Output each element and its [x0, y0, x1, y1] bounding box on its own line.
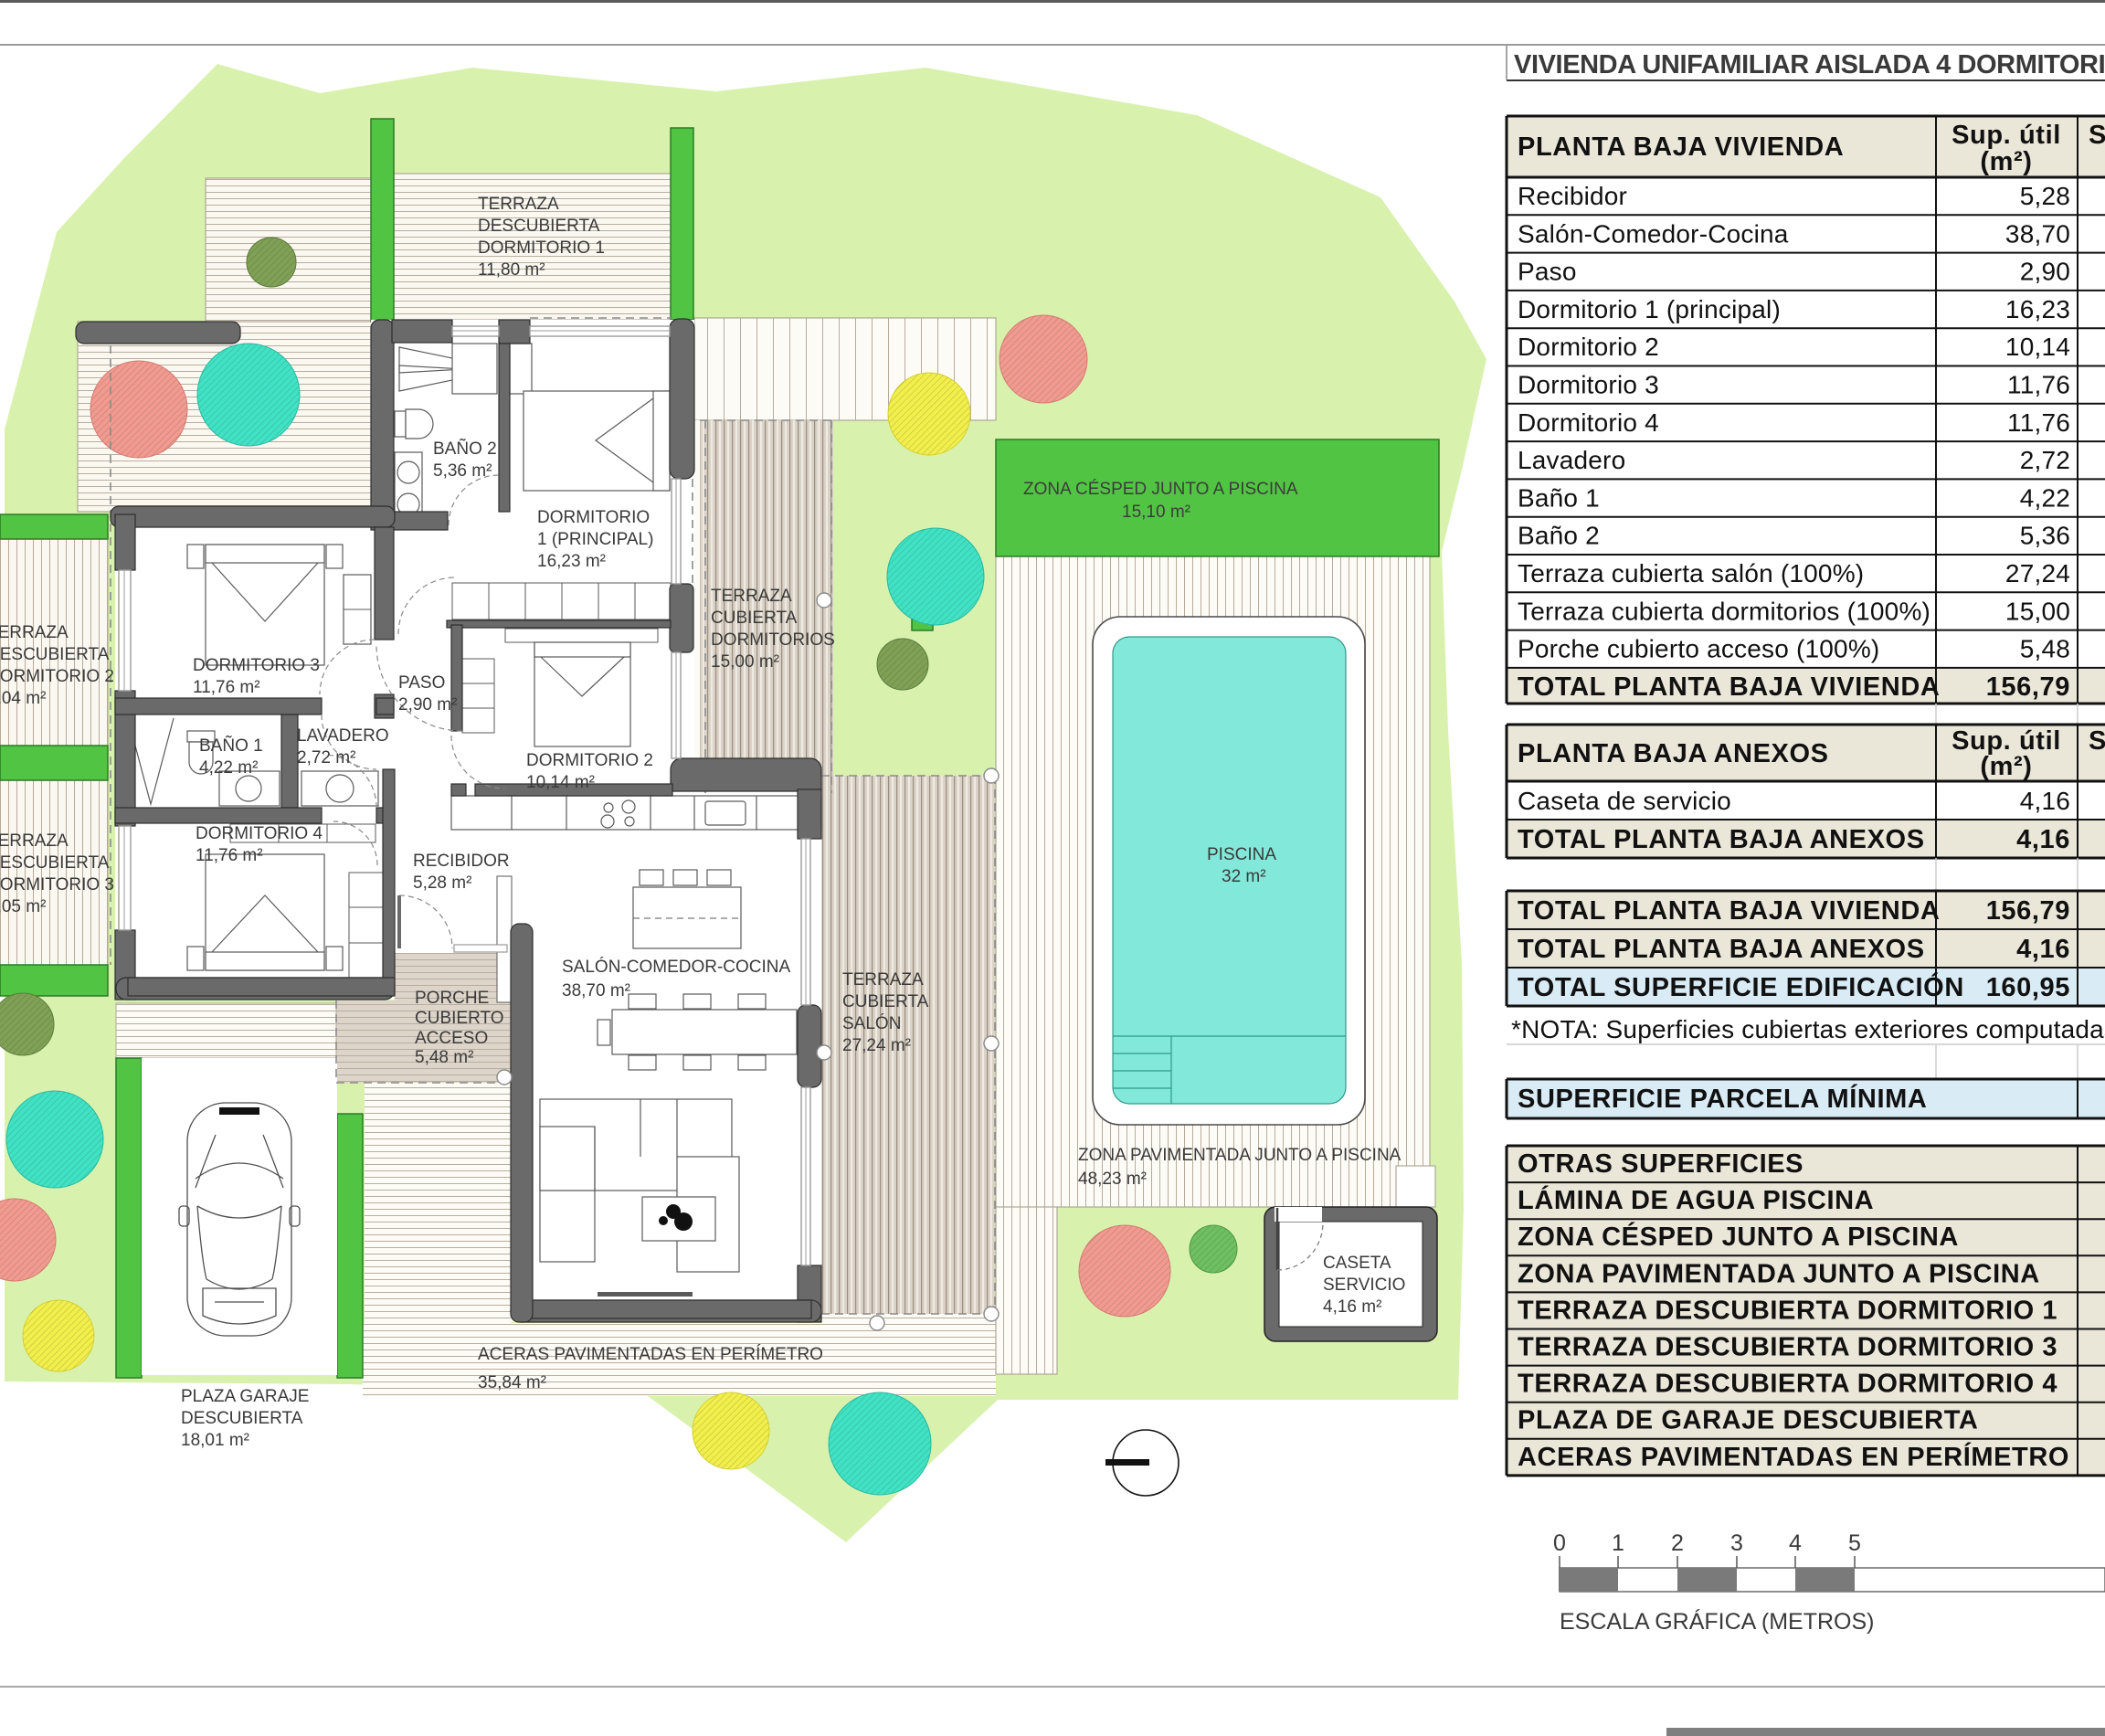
- svg-text:TERRAZA DESCUBIERTA DORMITORIO: TERRAZA DESCUBIERTA DORMITORIO 3: [1518, 1333, 2057, 1362]
- svg-text:Lavadero: Lavadero: [1518, 446, 1625, 474]
- svg-text:ACERAS PAVIMENTADAS EN PERÍMET: ACERAS PAVIMENTADAS EN PERÍMETRO: [478, 1345, 823, 1364]
- svg-text:*NOTA: Superficies cubiertas e: *NOTA: Superficies cubiertas exteriores …: [1511, 1015, 2105, 1043]
- svg-text:5,04 m²: 5,04 m²: [0, 689, 46, 708]
- svg-text:(m²): (m²): [1980, 752, 2032, 781]
- svg-text:DESCUBIERTA: DESCUBIERTA: [0, 853, 110, 873]
- svg-text:27,24 m²: 27,24 m²: [842, 1036, 911, 1055]
- svg-text:2: 2: [1671, 1530, 1684, 1556]
- svg-text:48,23 m²: 48,23 m²: [1078, 1170, 1147, 1189]
- svg-text:3: 3: [1730, 1530, 1743, 1556]
- svg-text:SERVICIO: SERVICIO: [1323, 1276, 1405, 1295]
- svg-text:Dormitorio 3: Dormitorio 3: [1518, 371, 1659, 399]
- svg-text:ACERAS PAVIMENTADAS EN PERÍMET: ACERAS PAVIMENTADAS EN PERÍMETRO: [1518, 1441, 2069, 1472]
- svg-text:ZONA PAVIMENTADA JUNTO A PISCI: ZONA PAVIMENTADA JUNTO A PISCINA: [1078, 1146, 1402, 1165]
- svg-text:TERRAZA: TERRAZA: [0, 831, 69, 851]
- svg-text:11,76: 11,76: [2007, 371, 2070, 399]
- svg-text:ZONA CÉSPED JUNTO A PISCINA: ZONA CÉSPED JUNTO A PISCINA: [1518, 1221, 1959, 1252]
- svg-text:15,00: 15,00: [2005, 597, 2070, 625]
- svg-text:16,23 m²: 16,23 m²: [537, 552, 606, 571]
- svg-text:0: 0: [1553, 1530, 1566, 1556]
- svg-text:Sup. co: Sup. co: [2089, 121, 2105, 150]
- svg-text:38,70: 38,70: [2005, 219, 2070, 248]
- svg-text:5,28 m²: 5,28 m²: [413, 873, 471, 893]
- svg-text:TERRAZA: TERRAZA: [711, 587, 792, 606]
- svg-text:PLANTA BAJA ANEXOS: PLANTA BAJA ANEXOS: [1518, 739, 1829, 768]
- svg-text:Terraza cubierta dormitorios (: Terraza cubierta dormitorios (100%): [1518, 597, 1930, 625]
- svg-text:PISCINA: PISCINA: [1207, 845, 1276, 864]
- svg-text:TERRAZA DESCUBIERTA DORMITORIO: TERRAZA DESCUBIERTA DORMITORIO 4: [1518, 1370, 2057, 1399]
- svg-text:5,48: 5,48: [2020, 635, 2070, 663]
- svg-text:LÁMINA DE AGUA PISCINA: LÁMINA DE AGUA PISCINA: [1518, 1184, 1874, 1215]
- svg-text:ESCALA GRÁFICA (METROS): ESCALA GRÁFICA (METROS): [1560, 1608, 1875, 1635]
- svg-text:OTRAS SUPERFICIES: OTRAS SUPERFICIES: [1518, 1149, 1804, 1179]
- svg-text:156,79: 156,79: [1986, 672, 2070, 702]
- svg-text:27,24: 27,24: [2005, 559, 2070, 587]
- svg-text:Terraza cubierta salón (100%): Terraza cubierta salón (100%): [1518, 559, 1864, 587]
- svg-text:SALÓN: SALÓN: [842, 1013, 901, 1033]
- svg-text:SUPERFICIE PARCELA MÍNIMA: SUPERFICIE PARCELA MÍNIMA: [1518, 1083, 1927, 1114]
- svg-text:PORCHE: PORCHE: [415, 989, 489, 1008]
- svg-text:38,70 m²: 38,70 m²: [562, 981, 630, 1000]
- svg-text:DORMITORIO 1: DORMITORIO 1: [478, 238, 605, 258]
- svg-text:5: 5: [1848, 1530, 1861, 1556]
- svg-text:4,16 m²: 4,16 m²: [1323, 1297, 1381, 1317]
- svg-text:Baño 2: Baño 2: [1518, 522, 1600, 550]
- svg-text:15,00 m²: 15,00 m²: [711, 652, 779, 672]
- svg-text:RECIBIDOR: RECIBIDOR: [413, 852, 510, 871]
- svg-text:PLAZA GARAJE: PLAZA GARAJE: [181, 1387, 309, 1406]
- svg-text:DORMITORIO 2: DORMITORIO 2: [0, 667, 114, 686]
- svg-text:ZONA PAVIMENTADA JUNTO A PISCI: ZONA PAVIMENTADA JUNTO A PISCINA: [1518, 1259, 2040, 1288]
- svg-text:10,14: 10,14: [2005, 333, 2070, 361]
- svg-text:TERRAZA: TERRAZA: [0, 623, 69, 642]
- svg-text:TERRAZA DESCUBIERTA DORMITORIO: TERRAZA DESCUBIERTA DORMITORIO 1: [1518, 1296, 2057, 1325]
- svg-text:5,05 m²: 5,05 m²: [0, 897, 46, 916]
- svg-text:SALÓN-COMEDOR-COCINA: SALÓN-COMEDOR-COCINA: [562, 957, 791, 977]
- svg-text:5,28: 5,28: [2020, 182, 2070, 210]
- svg-text:32 m²: 32 m²: [1222, 867, 1266, 886]
- svg-text:Caseta de servicio: Caseta de servicio: [1518, 787, 1731, 815]
- svg-text:TOTAL PLANTA BAJA ANEXOS: TOTAL PLANTA BAJA ANEXOS: [1518, 825, 1925, 854]
- svg-text:CASETA: CASETA: [1323, 1254, 1391, 1273]
- svg-text:ACCESO: ACCESO: [415, 1029, 488, 1048]
- svg-text:2,90 m²: 2,90 m²: [398, 695, 457, 715]
- svg-text:4,22 m²: 4,22 m²: [199, 758, 258, 778]
- svg-text:DORMITORIO 3: DORMITORIO 3: [193, 656, 320, 675]
- svg-text:4,16: 4,16: [2016, 825, 2070, 854]
- svg-text:5,36 m²: 5,36 m²: [433, 461, 492, 481]
- svg-text:1: 1: [1612, 1530, 1624, 1556]
- svg-text:11,76: 11,76: [2007, 408, 2070, 437]
- svg-text:PLANTA BAJA VIVIENDA: PLANTA BAJA VIVIENDA: [1518, 132, 1844, 162]
- svg-text:TERRAZA: TERRAZA: [478, 195, 559, 214]
- svg-text:Recibidor: Recibidor: [1518, 182, 1627, 210]
- svg-text:DORMITORIO: DORMITORIO: [537, 508, 650, 527]
- svg-text:Porche cubierto acceso (100%): Porche cubierto acceso (100%): [1518, 635, 1879, 663]
- svg-text:Dormitorio 1 (principal): Dormitorio 1 (principal): [1518, 295, 1781, 323]
- svg-text:5,48 m²: 5,48 m²: [415, 1048, 473, 1067]
- svg-text:LAVADERO: LAVADERO: [297, 726, 389, 746]
- svg-text:CUBIERTO: CUBIERTO: [415, 1009, 504, 1028]
- svg-text:4,16: 4,16: [2020, 787, 2070, 815]
- svg-text:2,90: 2,90: [2020, 258, 2070, 286]
- svg-text:Sup. co: Sup. co: [2089, 726, 2105, 756]
- svg-text:CUBIERTA: CUBIERTA: [842, 992, 929, 1011]
- svg-text:4: 4: [1789, 1530, 1802, 1556]
- svg-text:DESCUBIERTA: DESCUBIERTA: [478, 217, 600, 236]
- svg-text:160,95: 160,95: [1986, 973, 2070, 1002]
- svg-text:2,72 m²: 2,72 m²: [297, 748, 355, 767]
- svg-text:Dormitorio 4: Dormitorio 4: [1518, 408, 1659, 437]
- svg-text:ZONA CÉSPED JUNTO A PISCINA: ZONA CÉSPED JUNTO A PISCINA: [1023, 480, 1298, 499]
- svg-text:TOTAL SUPERFICIE EDIFICACIÓN: TOTAL SUPERFICIE EDIFICACIÓN: [1518, 971, 1964, 1002]
- svg-text:156,79: 156,79: [1986, 896, 2070, 926]
- svg-text:PLAZA DE GARAJE DESCUBIERTA: PLAZA DE GARAJE DESCUBIERTA: [1518, 1406, 1978, 1435]
- svg-text:35,84 m²: 35,84 m²: [478, 1373, 546, 1392]
- svg-text:18,01 m²: 18,01 m²: [181, 1431, 249, 1450]
- svg-text:VIVIENDA UNIFAMILIAR AISLADA 4: VIVIENDA UNIFAMILIAR AISLADA 4 DORMITORI…: [1514, 50, 2105, 79]
- svg-text:10,14 m²: 10,14 m²: [526, 773, 595, 792]
- svg-text:TOTAL PLANTA BAJA VIVIENDA: TOTAL PLANTA BAJA VIVIENDA: [1518, 896, 1940, 926]
- svg-text:Dormitorio 2: Dormitorio 2: [1518, 333, 1659, 361]
- svg-text:4,22: 4,22: [2020, 483, 2070, 512]
- svg-text:TOTAL PLANTA BAJA VIVIENDA: TOTAL PLANTA BAJA VIVIENDA: [1518, 672, 1940, 702]
- svg-text:DORMITORIO 2: DORMITORIO 2: [526, 751, 653, 770]
- svg-text:CUBIERTA: CUBIERTA: [711, 609, 798, 628]
- svg-text:DORMITORIO 4: DORMITORIO 4: [196, 824, 323, 843]
- svg-text:Sup. útil: Sup. útil: [1952, 121, 2061, 150]
- svg-text:DESCUBIERTA: DESCUBIERTA: [0, 645, 110, 664]
- svg-text:11,76 m²: 11,76 m²: [193, 678, 260, 697]
- svg-text:1 (PRINCIPAL): 1 (PRINCIPAL): [537, 530, 653, 549]
- svg-text:11,80 m²: 11,80 m²: [478, 260, 545, 280]
- svg-text:TERRAZA: TERRAZA: [842, 970, 924, 990]
- svg-text:TOTAL PLANTA BAJA ANEXOS: TOTAL PLANTA BAJA ANEXOS: [1518, 935, 1925, 964]
- svg-text:DORMITORIOS: DORMITORIOS: [711, 630, 835, 650]
- svg-text:PASO: PASO: [398, 673, 445, 693]
- svg-text:DESCUBIERTA: DESCUBIERTA: [181, 1409, 303, 1428]
- svg-text:16,23: 16,23: [2005, 295, 2070, 323]
- svg-text:5,36: 5,36: [2020, 522, 2070, 550]
- svg-text:2,72: 2,72: [2020, 446, 2070, 474]
- svg-text:11,76 m²: 11,76 m²: [196, 846, 263, 865]
- svg-text:(m²): (m²): [1980, 147, 2032, 176]
- svg-text:Salón-Comedor-Cocina: Salón-Comedor-Cocina: [1518, 219, 1789, 248]
- svg-text:Paso: Paso: [1518, 258, 1577, 286]
- svg-text:BAÑO 2: BAÑO 2: [433, 439, 497, 459]
- svg-text:BAÑO 1: BAÑO 1: [199, 736, 263, 756]
- svg-text:15,10 m²: 15,10 m²: [1122, 503, 1190, 522]
- svg-text:Baño 1: Baño 1: [1518, 483, 1600, 512]
- svg-text:4,16: 4,16: [2016, 935, 2070, 964]
- svg-text:DORMITORIO 3: DORMITORIO 3: [0, 875, 114, 894]
